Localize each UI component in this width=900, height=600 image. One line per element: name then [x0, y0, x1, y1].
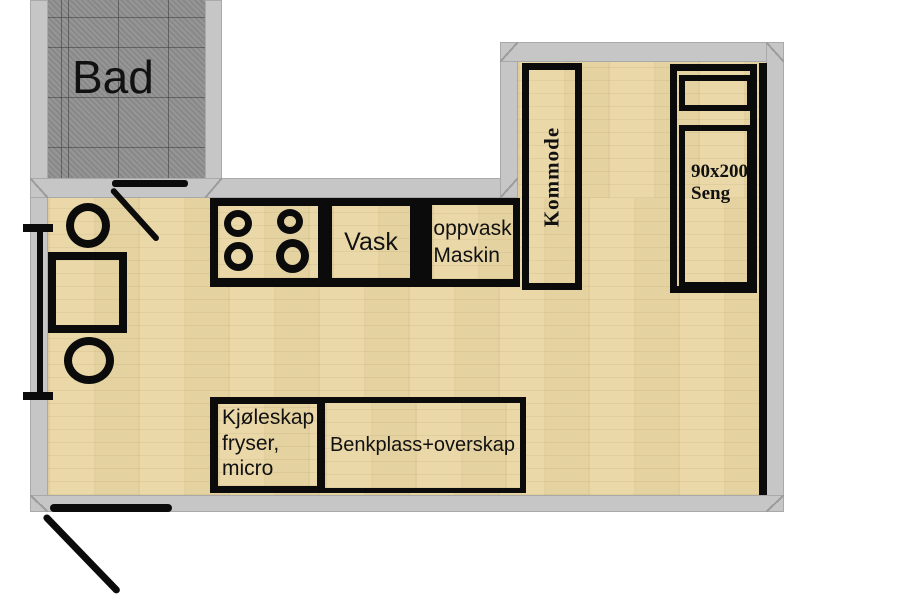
wall-miter	[30, 495, 48, 512]
bench-box: Benkplass+overskap	[325, 403, 520, 488]
sink-label: Vask	[344, 228, 398, 257]
wall-miter	[766, 42, 784, 62]
fridge-label-line3: micro	[222, 456, 317, 482]
bathroom-label: Bad	[72, 50, 154, 104]
stove-burner	[276, 239, 309, 273]
fridge-label-line1: Kjøleskap	[222, 405, 317, 431]
entry-door-swing	[42, 513, 121, 595]
stove-burner	[277, 209, 303, 234]
wall-right	[766, 42, 784, 512]
dining-table	[48, 252, 127, 333]
bench-label: Benkplass+overskap	[330, 434, 515, 457]
right-wall-line	[759, 63, 767, 495]
bed-label-line2: Seng	[691, 183, 747, 205]
wall-middle-horizontal	[30, 178, 518, 198]
stove-burner	[224, 242, 253, 271]
wall-bathroom-right	[205, 0, 222, 198]
bed-pillow	[679, 75, 753, 111]
window-cap-bottom	[23, 392, 53, 400]
dishwasher-label-line1: oppvask	[433, 215, 511, 242]
bathroom-door-leaf	[112, 180, 188, 187]
dishwasher-box: oppvask Maskin	[432, 205, 513, 279]
chair-bottom	[64, 337, 114, 384]
wall-miter	[500, 178, 518, 198]
dresser-label: Kommode	[540, 126, 565, 226]
dresser-box: Kommode	[522, 63, 582, 290]
window-icon	[37, 227, 43, 397]
bed-mattress: 90x200 Seng	[679, 125, 753, 288]
wall-miter	[766, 495, 784, 512]
wall-rightsection-top	[500, 42, 784, 62]
stove-burner	[224, 210, 252, 237]
sink-box: Vask	[332, 206, 410, 278]
wall-miter	[205, 178, 222, 198]
entry-door-leaf	[50, 504, 172, 512]
floor-plan: Bad Vask oppvask Maskin Kommode 90x200 S…	[0, 0, 900, 600]
bed-label-line1: 90x200	[691, 161, 747, 183]
wall-miter	[30, 178, 48, 198]
fridge-box: Kjøleskap fryser, micro	[218, 404, 317, 486]
dishwasher-label-line2: Maskin	[433, 242, 511, 269]
fridge-label-line2: fryser,	[222, 431, 317, 457]
chair-top	[66, 203, 110, 248]
wall-rightsection-left	[500, 42, 518, 198]
window-cap-top	[23, 224, 53, 232]
wall-miter	[500, 42, 518, 62]
